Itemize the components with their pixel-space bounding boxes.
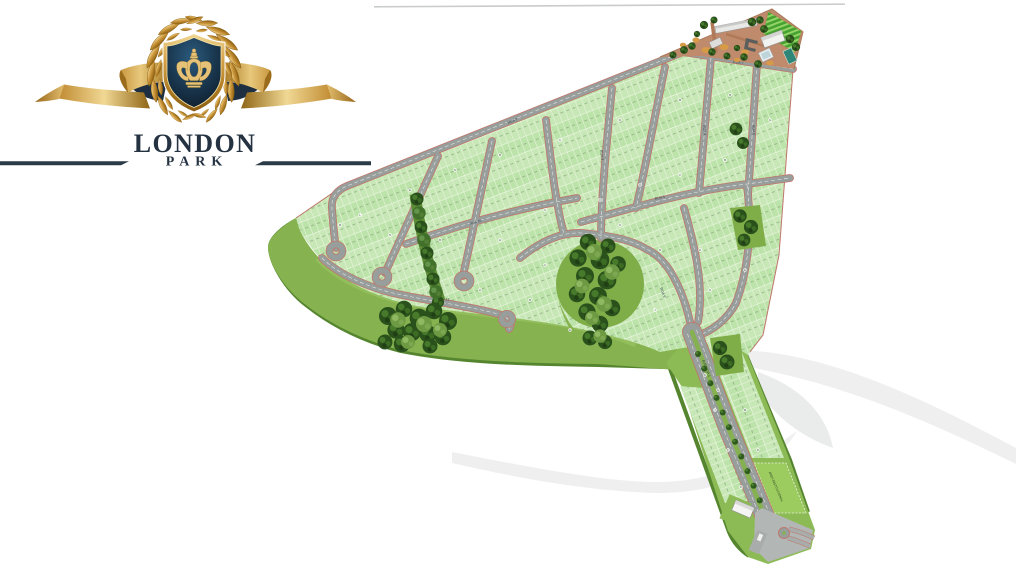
svg-text:H: H [499, 238, 501, 242]
svg-text:B: B [529, 298, 531, 302]
svg-text:RUA 6: RUA 6 [751, 125, 756, 136]
svg-text:E: E [409, 188, 411, 192]
svg-text:G: G [769, 118, 771, 122]
svg-text:C: C [544, 208, 546, 212]
svg-text:PARK: PARK [166, 155, 229, 170]
svg-text:E: E [569, 328, 571, 332]
svg-text:B: B [729, 93, 731, 97]
svg-text:F: F [727, 448, 729, 452]
svg-text:B: B [659, 248, 661, 252]
svg-text:C: C [679, 173, 681, 177]
svg-text:D: D [740, 485, 742, 489]
svg-text:D: D [704, 373, 706, 377]
svg-text:B: B [724, 158, 726, 162]
svg-text:N: N [454, 168, 456, 172]
svg-text:N: N [389, 233, 391, 237]
svg-text:G: G [717, 388, 719, 392]
svg-text:D: D [699, 248, 701, 252]
svg-text:B: B [439, 238, 441, 242]
svg-text:E: E [744, 268, 746, 272]
svg-text:RUA 4: RUA 4 [702, 125, 707, 136]
svg-text:D: D [757, 448, 759, 452]
svg-text:H: H [479, 288, 481, 292]
svg-text:C: C [544, 263, 546, 267]
svg-text:C: C [559, 138, 561, 142]
svg-text:B: B [499, 153, 501, 157]
svg-text:B: B [339, 223, 341, 227]
svg-text:D: D [619, 118, 621, 122]
